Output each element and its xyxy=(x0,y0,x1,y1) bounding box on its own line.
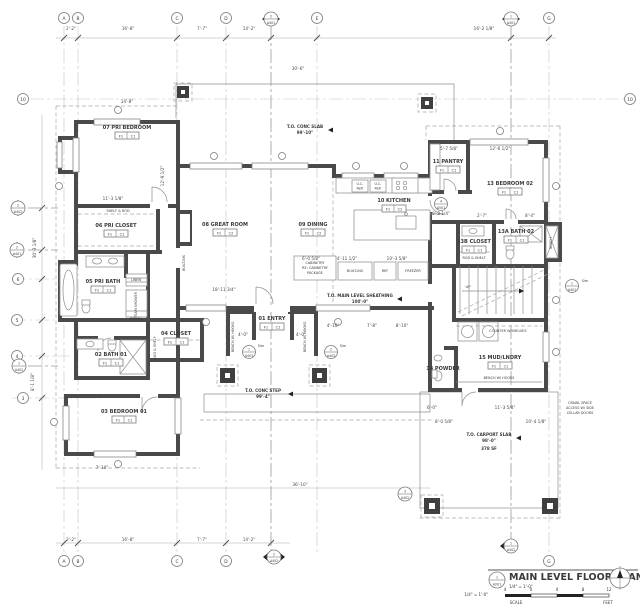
room-label-closet-04: 04 CLOSETF1C1 xyxy=(161,331,192,345)
linen-note: LINEN xyxy=(131,278,142,282)
crawl-space-note-2: ACCESS W/ SIDE xyxy=(566,406,594,410)
grid-bubble-e-top: E xyxy=(312,13,323,24)
svg-text:A403: A403 xyxy=(245,354,253,358)
grid-bubble-10-left: 10 xyxy=(18,94,29,105)
rod-shelf-note-2: ROD & SHELF xyxy=(462,256,485,260)
svg-text:04 CLOSET: 04 CLOSET xyxy=(161,331,192,337)
svg-text:C1: C1 xyxy=(452,168,457,172)
bench-note-2: BENCH xyxy=(549,237,553,249)
level-patio-slab-label: T.O. CONC SLAB xyxy=(287,124,323,129)
grid-bubble-b-bottom: B xyxy=(73,556,84,567)
svg-text:13B CLOSET: 13B CLOSET xyxy=(457,239,491,245)
room-label-powder: 14 POWDER xyxy=(426,366,460,372)
svg-text:06 PRI CLOSET: 06 PRI CLOSET xyxy=(95,223,137,229)
svg-text:C1: C1 xyxy=(180,340,185,344)
detail-marker-kitchen: 4A501 xyxy=(435,198,448,211)
dim-label: 9'-2 1/4" xyxy=(432,211,450,216)
svg-text:C2: C2 xyxy=(317,231,322,235)
svg-text:F1: F1 xyxy=(466,248,470,252)
uc-refr-1a: U.C. xyxy=(356,182,363,186)
dim-label: 4'-0" xyxy=(296,332,306,337)
svg-text:01 ENTRY: 01 ENTRY xyxy=(259,316,286,322)
svg-text:05 PRI BATH: 05 PRI BATH xyxy=(86,279,121,285)
cabinetry-note-2: RE: CABINETRY xyxy=(302,266,329,270)
svg-text:F1: F1 xyxy=(103,361,107,365)
svg-text:07 PRI BEDROOM: 07 PRI BEDROOM xyxy=(103,125,152,131)
title-block: 1A201 MAIN LEVEL FLOOR PLAN 1/4" = 1'-0"… xyxy=(464,566,640,605)
detail-marker-entry-2: 2A403Sim xyxy=(325,344,347,359)
svg-text:4: 4 xyxy=(556,587,559,592)
section-marker-left-1: 2A402 xyxy=(11,200,25,216)
dim-label: 7'-7" xyxy=(197,26,207,31)
builtins-note-1: BUILT-INS xyxy=(182,255,186,271)
dim-label: 8'-1 1/8" xyxy=(30,373,35,391)
floor-plan-sheet: UP 07 PRI BEDROOMF1C1 06 PRI CLOSETF1C1 … xyxy=(0,0,640,611)
svg-text:F1: F1 xyxy=(108,232,112,236)
svg-text:A402: A402 xyxy=(401,496,409,500)
svg-text:2: 2 xyxy=(330,348,332,352)
grid-bubble-g-top: G xyxy=(544,13,555,24)
uc-refr-2a: U.C. xyxy=(374,182,381,186)
svg-text:A401: A401 xyxy=(568,288,576,292)
svg-text:C1: C1 xyxy=(504,364,509,368)
grid-bubble-b-top: B xyxy=(73,13,84,24)
svg-text:A501: A501 xyxy=(437,206,445,210)
svg-text:F1: F1 xyxy=(305,231,309,235)
svg-text:F1: F1 xyxy=(264,325,268,329)
level-patio-slab-elev: 99'-10" xyxy=(297,130,313,135)
grid-bubble-5: 5 xyxy=(12,315,23,326)
shelf-rod-note: SHELF & ROD xyxy=(106,209,130,213)
svg-text:1: 1 xyxy=(571,282,573,286)
svg-text:A403: A403 xyxy=(327,354,335,358)
dim-label: 10'-4 1/8" xyxy=(526,419,547,424)
freezer-note: FREEZER xyxy=(405,269,421,273)
svg-text:1: 1 xyxy=(496,576,498,580)
bench-hooks-note-2: BENCH W/ HOOKS xyxy=(303,322,307,353)
section-marker-bottom-2: 1A402 xyxy=(500,539,518,553)
svg-text:Sim: Sim xyxy=(582,279,589,283)
section-marker-top-2: 1A401 xyxy=(502,12,520,26)
svg-text:11 PANTRY: 11 PANTRY xyxy=(433,159,464,165)
svg-text:02 BATH 01: 02 BATH 01 xyxy=(95,352,128,358)
dim-label: 4'-11 1/2" xyxy=(337,256,358,261)
svg-text:F1: F1 xyxy=(168,340,172,344)
svg-text:F1: F1 xyxy=(440,168,444,172)
grid-bubble-c-bottom: C xyxy=(172,556,183,567)
room-label-pri-closet: 06 PRI CLOSETF1C1 xyxy=(95,223,137,237)
bench-note-1: BENCH xyxy=(130,317,142,321)
svg-text:14 POWDER: 14 POWDER xyxy=(426,366,460,372)
svg-text:1: 1 xyxy=(18,362,20,366)
floor-plan-drawing: UP 07 PRI BEDROOMF1C1 06 PRI CLOSETF1C1 … xyxy=(0,0,640,611)
dim-label: 7'-8" xyxy=(367,323,377,328)
svg-text:E: E xyxy=(316,16,319,22)
section-marker-top-1: 2A401 xyxy=(262,12,280,26)
rod-shelf-note-1: ROD & SHELF xyxy=(153,336,157,359)
grid-bubble-c-top: C xyxy=(172,13,183,24)
room-label-mud-lndry: 15 MUD/LNDRYF1C1 xyxy=(479,355,522,369)
section-marker-bottom-1: 2A402 xyxy=(263,550,285,564)
dim-label: 4'-10" xyxy=(327,323,340,328)
svg-text:10 KITCHEN: 10 KITCHEN xyxy=(377,198,410,204)
dim-label: 14'-2" xyxy=(243,26,256,31)
room-label-pantry: 11 PANTRYF1C1 xyxy=(433,159,464,173)
dim-label: 8'-0 5/8" xyxy=(435,419,453,424)
grid-bubble-3: 3 xyxy=(18,393,29,404)
grid-bubble-d-top: D xyxy=(221,13,232,24)
svg-text:2: 2 xyxy=(270,15,272,19)
crawl-space-note-3: CELLAR DOORS xyxy=(567,411,594,415)
grid-bubble-g-bottom: G xyxy=(544,556,555,567)
svg-text:F1: F1 xyxy=(508,238,512,242)
svg-text:A: A xyxy=(62,559,65,565)
svg-text:6: 6 xyxy=(17,277,20,283)
dim-label: 14'-8" xyxy=(121,99,134,104)
svg-text:13A BATH 02: 13A BATH 02 xyxy=(498,229,535,235)
dim-label: 4'-0" xyxy=(238,332,248,337)
room-label-pri-bedroom: 07 PRI BEDROOMF1C1 xyxy=(103,125,152,139)
dim-label: 2'-2" xyxy=(66,537,76,542)
svg-text:C1: C1 xyxy=(478,248,483,252)
grid-bubble-a-bottom: A xyxy=(59,556,70,567)
svg-text:5: 5 xyxy=(16,318,19,324)
detail-marker-stair: 1A401Sim xyxy=(566,279,589,293)
grid-bubble-a-top: A xyxy=(59,13,70,24)
svg-text:A402: A402 xyxy=(507,548,515,552)
dim-label: 2'-7" xyxy=(477,213,487,218)
dim-label: 8'-4" xyxy=(525,213,535,218)
dim-label: 14'-2" xyxy=(243,537,256,542)
dim-label: 16'-8" xyxy=(122,26,135,31)
ref-note: REF xyxy=(382,269,388,273)
builtins-note-2: BUILT-INS xyxy=(347,269,363,273)
svg-text:03 BEDROOM 01: 03 BEDROOM 01 xyxy=(101,409,148,415)
svg-text:09 DINING: 09 DINING xyxy=(298,222,327,228)
svg-text:A402: A402 xyxy=(270,559,278,563)
dim-label: 30'-6" xyxy=(292,66,305,71)
dim-label: 7'-7" xyxy=(197,537,207,542)
svg-text:C1: C1 xyxy=(514,190,519,194)
svg-text:A401: A401 xyxy=(267,21,275,25)
level-conc-step-label: T.O. CONC STEP xyxy=(245,388,281,393)
cabinetry-note-1: CABINETRY xyxy=(306,261,326,265)
svg-text:A401: A401 xyxy=(13,252,21,256)
dim-label: 30'-3 1/8" xyxy=(32,238,37,259)
svg-text:B: B xyxy=(76,16,79,22)
svg-text:F1: F1 xyxy=(116,418,120,422)
dim-label: 36'-10" xyxy=(292,482,307,487)
level-main-sheathing-label: T.O. MAIN LEVEL SHEATHING xyxy=(327,293,393,298)
svg-text:A201: A201 xyxy=(493,583,501,587)
svg-text:2: 2 xyxy=(16,246,18,250)
room-label-kitchen: 10 KITCHENF1C2 xyxy=(377,198,410,212)
dim-label: 16'-2 1/8" xyxy=(474,26,495,31)
room-label-closet-13b: 13B CLOSETF1C1 xyxy=(457,239,491,253)
dim-label: 12'-9 1/2" xyxy=(160,166,165,187)
room-label-entry: 01 ENTRYF1C1 xyxy=(259,316,286,330)
svg-text:3: 3 xyxy=(404,490,406,494)
svg-text:C: C xyxy=(175,559,178,565)
svg-text:12: 12 xyxy=(606,587,612,592)
level-carport-area: 378 SF xyxy=(481,446,497,451)
svg-text:C1: C1 xyxy=(115,361,120,365)
level-conc-step-elev: 99'-4" xyxy=(256,394,270,399)
room-label-pri-bath: 05 PRI BATHF1C1 xyxy=(86,279,121,293)
cabinetry-note-3: PACKAGE xyxy=(307,271,323,275)
room-label-great-room: 08 GREAT ROOMF1C2 xyxy=(202,222,248,236)
windows xyxy=(57,119,549,457)
room-label-dining: 09 DININGF1C2 xyxy=(298,222,327,236)
scale-bar-scale-label: SCALE xyxy=(510,600,523,605)
svg-text:08 GREAT ROOM: 08 GREAT ROOM xyxy=(202,222,248,228)
svg-text:C: C xyxy=(175,16,178,22)
dim-label: 11'-3 5/8" xyxy=(495,405,516,410)
detail-marker-entry-1: 1A403Sim xyxy=(243,344,265,359)
svg-text:8: 8 xyxy=(582,587,585,592)
grid-bubble-6: 6 xyxy=(13,274,24,285)
level-carport-slab-label: T.O. CARPORT SLAB xyxy=(467,432,512,437)
svg-text:2: 2 xyxy=(17,204,19,208)
crawl-space-note-1: CRAWL SPACE xyxy=(568,401,592,405)
svg-text:F1: F1 xyxy=(492,364,496,368)
dim-label: 6'-0" xyxy=(427,405,437,410)
bench-hooks-note-1: BENCH W/ HOOKS xyxy=(231,322,235,353)
grid-bubble-d-bottom: D xyxy=(221,556,232,567)
grid-bubble-10-right: 10 xyxy=(625,94,636,105)
svg-text:F1: F1 xyxy=(217,231,221,235)
svg-text:C1: C1 xyxy=(520,238,525,242)
level-callouts: T.O. CONC SLAB 99'-10" T.O. MAIN LEVEL S… xyxy=(245,124,521,451)
svg-text:0: 0 xyxy=(530,587,533,592)
svg-text:10: 10 xyxy=(627,97,633,103)
room-label-bedroom-01: 03 BEDROOM 01F1C1 xyxy=(101,409,148,423)
dim-label: 2'-2" xyxy=(66,26,76,31)
steam-shower-note: STEAM SHOWER xyxy=(134,291,138,320)
svg-text:10: 10 xyxy=(20,97,26,103)
svg-text:A: A xyxy=(62,16,65,22)
svg-text:13 BEDROOM 02: 13 BEDROOM 02 xyxy=(487,181,534,187)
svg-text:15 MUD/LNDRY: 15 MUD/LNDRY xyxy=(479,355,522,361)
level-main-sheathing-elev: 100'-0" xyxy=(352,299,368,304)
svg-text:F1: F1 xyxy=(386,207,390,211)
svg-text:C1: C1 xyxy=(120,232,125,236)
dim-label: 16'-8" xyxy=(122,537,135,542)
svg-text:4: 4 xyxy=(440,200,442,204)
svg-text:1: 1 xyxy=(248,348,250,352)
svg-text:F1: F1 xyxy=(95,288,99,292)
scale-bar-ratio: 1/4" = 1'-0" xyxy=(464,592,488,597)
bench-hooks-note-3: BENCH W/ HOOKS xyxy=(484,376,515,380)
view-number-bubble: 1A201 xyxy=(489,572,505,588)
svg-text:B: B xyxy=(76,559,79,565)
uc-refr-2b: Refr xyxy=(375,187,382,191)
dim-label: 5'-7 5/8" xyxy=(440,146,458,151)
counter-shelves-note: COUNTER W/SHELVES xyxy=(489,329,526,333)
svg-text:Sim: Sim xyxy=(340,344,347,348)
svg-text:F1: F1 xyxy=(119,134,123,138)
dim-label: 12'-6 1/2" xyxy=(490,146,511,151)
scale-bar-feet-label: FEET xyxy=(603,600,613,605)
svg-text:1: 1 xyxy=(510,542,512,546)
svg-text:C1: C1 xyxy=(107,288,112,292)
dim-label: 18'-11 3/4" xyxy=(212,287,235,292)
svg-text:4: 4 xyxy=(504,587,507,592)
svg-text:C1: C1 xyxy=(128,418,133,422)
section-marker-left-2: 2A401 xyxy=(10,242,24,258)
dim-label: 10'-3 5/8" xyxy=(387,256,408,261)
dim-label: 6'-0 5/8" xyxy=(302,256,320,261)
svg-text:G: G xyxy=(547,559,551,565)
walls xyxy=(58,120,562,456)
svg-text:F1: F1 xyxy=(502,190,506,194)
svg-text:A402: A402 xyxy=(14,210,22,214)
svg-text:3: 3 xyxy=(22,396,25,402)
level-carport-slab-elev: 98'-0" xyxy=(482,438,496,443)
svg-text:C2: C2 xyxy=(229,231,234,235)
svg-text:G: G xyxy=(547,16,551,22)
dim-label: 7'-10" xyxy=(96,465,109,470)
svg-text:C2: C2 xyxy=(398,207,403,211)
svg-text:C1: C1 xyxy=(276,325,281,329)
svg-text:1: 1 xyxy=(510,15,512,19)
svg-text:A402: A402 xyxy=(15,368,23,372)
section-marker-carport: 3A402 xyxy=(398,487,412,501)
uc-refr-1b: Refr xyxy=(357,187,364,191)
svg-text:Sim: Sim xyxy=(258,344,265,348)
stairs-up-label: UP xyxy=(465,284,471,289)
svg-text:C1: C1 xyxy=(131,134,136,138)
svg-text:2: 2 xyxy=(273,553,275,557)
dim-label: 8'-10" xyxy=(396,323,409,328)
room-label-bath-01: 02 BATH 01F1C1 xyxy=(95,352,128,366)
dim-label: 11'-3 1/8" xyxy=(103,196,124,201)
stairs: UP xyxy=(458,266,548,316)
svg-text:A401: A401 xyxy=(507,21,515,25)
room-label-bedroom-02: 13 BEDROOM 02F1C1 xyxy=(487,181,534,195)
scale-bar: 1/4" = 1'-0" 4 0 4 8 12 SCALE FEET xyxy=(464,587,613,605)
